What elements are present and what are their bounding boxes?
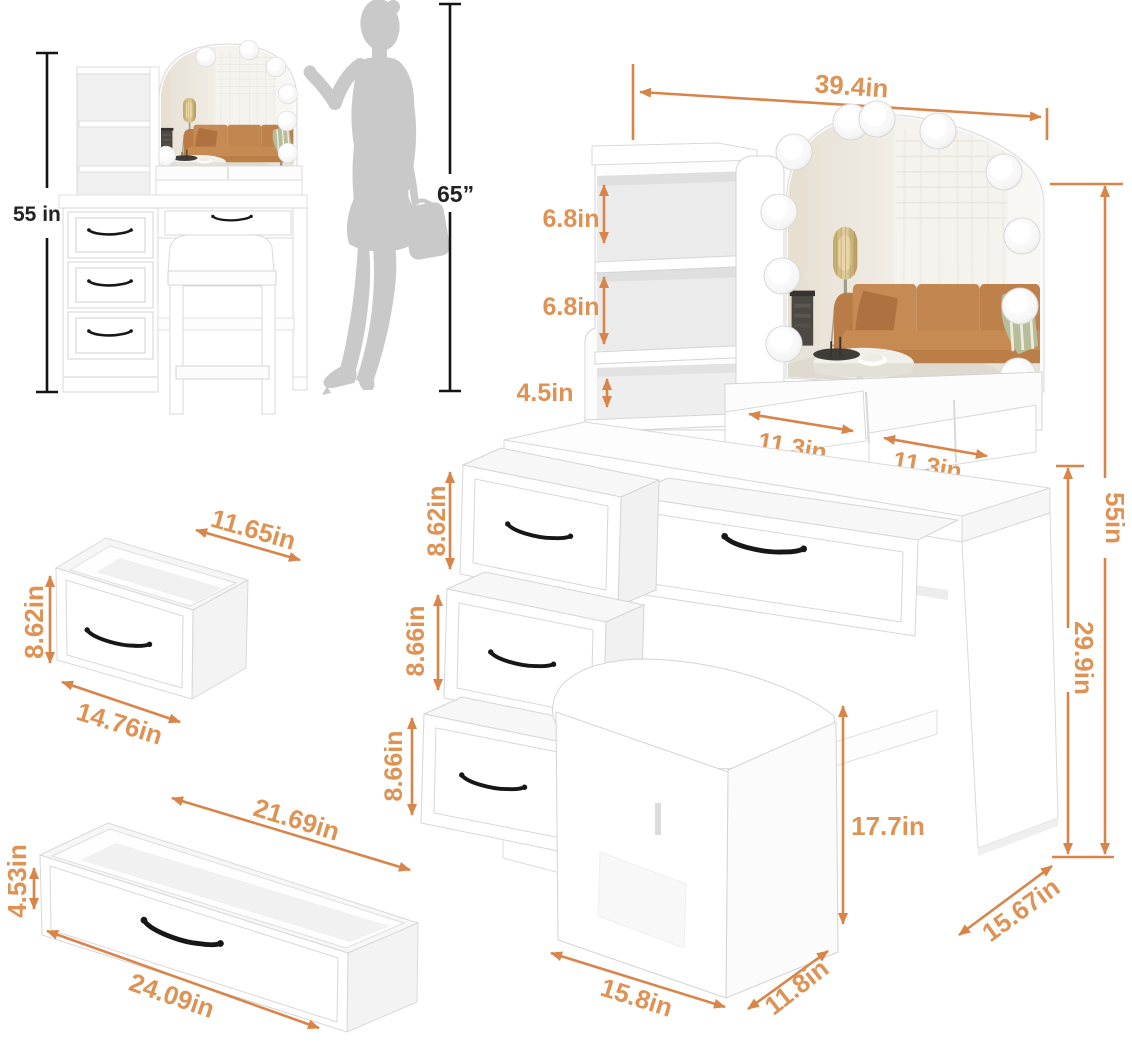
svg-text:55in: 55in xyxy=(1100,492,1130,544)
svg-text:29.9in: 29.9in xyxy=(1069,621,1099,695)
svg-text:6.8in: 6.8in xyxy=(543,205,600,233)
svg-text:8.66in: 8.66in xyxy=(402,606,430,677)
svg-text:8.62in: 8.62in xyxy=(423,486,451,557)
svg-text:55 in: 55 in xyxy=(13,203,61,226)
svg-text:8.62in: 8.62in xyxy=(19,585,49,659)
svg-text:4.53in: 4.53in xyxy=(2,844,32,918)
svg-text:39.4in: 39.4in xyxy=(814,68,890,103)
svg-text:17.7in: 17.7in xyxy=(851,811,925,841)
svg-text:4.5in: 4.5in xyxy=(517,379,574,407)
svg-text:65”: 65” xyxy=(437,181,474,207)
svg-text:8.66in: 8.66in xyxy=(380,731,408,802)
svg-text:6.8in: 6.8in xyxy=(543,293,600,321)
